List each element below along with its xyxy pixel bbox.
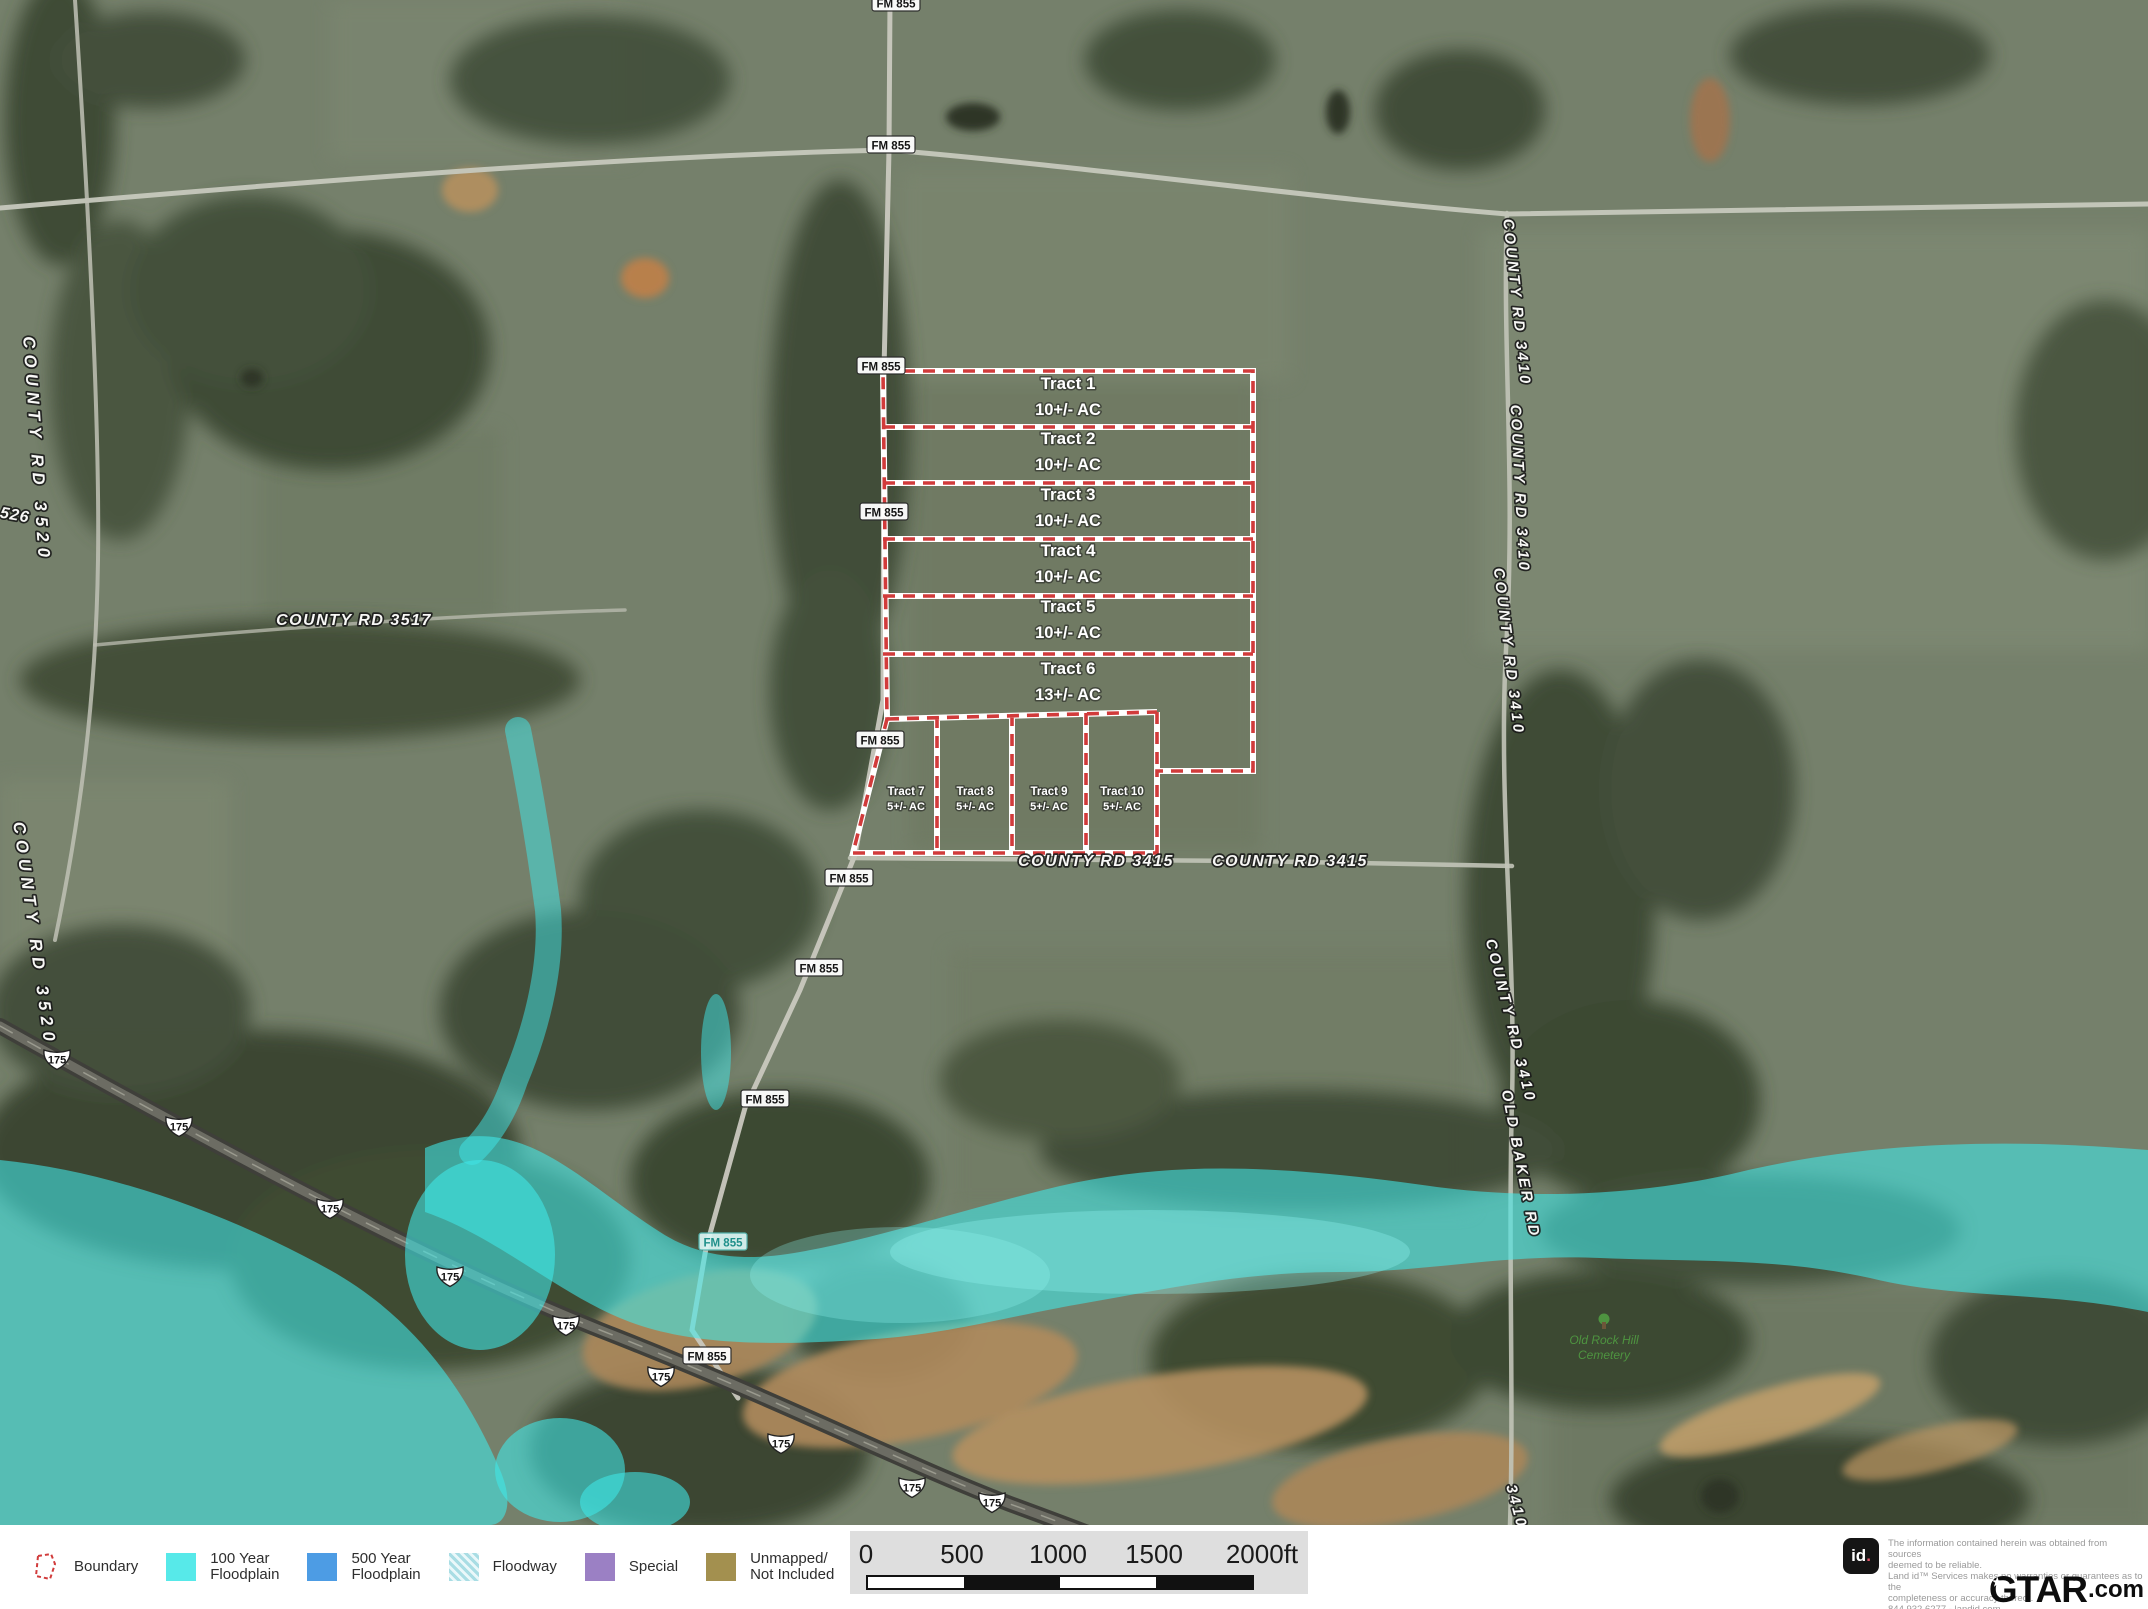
- gtar-suffix: .com: [2088, 1576, 2144, 1604]
- hwy-175-shield-text: 175: [48, 1055, 66, 1067]
- legend-label: Special: [629, 1559, 678, 1575]
- tract-acreage-label: 5+/- AC: [887, 801, 925, 813]
- scale-tick: 2000ft: [1226, 1539, 1298, 1570]
- scale-tick: 1500: [1125, 1539, 1183, 1570]
- tract-acreage-label: 10+/- AC: [1035, 456, 1101, 474]
- legend-label: 100 Year Floodplain: [210, 1551, 279, 1583]
- legend-label: Unmapped/ Not Included: [750, 1551, 834, 1583]
- tract-acreage-label: 10+/- AC: [1035, 401, 1101, 419]
- scale-bar: 0 500 1000 1500 2000ft: [850, 1531, 1308, 1594]
- tract-acreage-label: 5+/- AC: [1103, 801, 1141, 813]
- fm855-badge-text: FM 855: [704, 1238, 744, 1250]
- fm855-badge-text: FM 855: [688, 1352, 728, 1364]
- aerial-map: Old Rock Hill Cemetery COUNTY RD 3517COU…: [0, 0, 2148, 1525]
- hwy-175-shield-text: 175: [903, 1483, 921, 1495]
- legend-label: Floodway: [493, 1559, 557, 1575]
- tract-name-label: Tract 8: [956, 786, 994, 798]
- legend-item-unmapped: Unmapped/ Not Included: [706, 1551, 834, 1583]
- special-swatch: [585, 1553, 615, 1581]
- scale-tick: 0: [859, 1539, 873, 1570]
- legend-item-floodway: Floodway: [449, 1553, 557, 1581]
- fm855-badge: FM 855: [795, 959, 843, 976]
- scale-segment: [868, 1577, 964, 1588]
- legend-item-flood500: 500 Year Floodplain: [307, 1551, 420, 1583]
- fm855-badge: FM 855: [683, 1347, 731, 1364]
- fm855-badge: FM 855: [872, 0, 920, 11]
- tract-acreage-label: 5+/- AC: [1030, 801, 1068, 813]
- gtar-brand: GTAR★: [1989, 1569, 2087, 1609]
- floodway-swatch: [449, 1553, 479, 1581]
- aerial-map-svg: Old Rock Hill Cemetery COUNTY RD 3517COU…: [0, 0, 2148, 1525]
- legend-item-boundary: Boundary: [30, 1553, 138, 1581]
- tract-name-label: Tract 9: [1030, 786, 1067, 798]
- hwy-175-shield-text: 175: [652, 1372, 670, 1384]
- fm855-badge: FM 855: [857, 357, 905, 374]
- tract-acreage-label: 10+/- AC: [1035, 624, 1101, 642]
- star-icon: ★: [1992, 1575, 2003, 1589]
- fm855-badge: FM 855: [741, 1090, 789, 1107]
- cemetery-name-line1: Old Rock Hill: [1569, 1333, 1639, 1347]
- hwy-175-shield-text: 175: [170, 1122, 188, 1134]
- tract-name-label: Tract 3: [1041, 485, 1096, 504]
- tract-acreage-label: 10+/- AC: [1035, 512, 1101, 530]
- fm855-badge-text: FM 855: [872, 141, 912, 153]
- tract-acreage-label: 13+/- AC: [1035, 686, 1101, 704]
- landid-logo: id.: [1843, 1538, 1879, 1574]
- fm855-badge-text: FM 855: [861, 736, 901, 748]
- tract-name-label: Tract 10: [1100, 786, 1143, 798]
- tree-icon-trunk: [1602, 1322, 1606, 1329]
- scale-segment: [1156, 1577, 1252, 1588]
- tract-name-label: Tract 5: [1041, 597, 1096, 616]
- flood100-swatch: [166, 1553, 196, 1581]
- hwy-175-shield-text: 175: [557, 1321, 575, 1333]
- fm855-badge: FM 855: [825, 869, 873, 886]
- fm855-badge-text: FM 855: [862, 362, 902, 374]
- road-label-cr3415: COUNTY RD 3415: [1212, 853, 1368, 870]
- boundary-swatch-icon: [32, 1552, 58, 1582]
- tract-name-label: Tract 4: [1041, 541, 1096, 560]
- disclaimer-line: The information contained herein was obt…: [1888, 1538, 2143, 1560]
- cemetery-name-line2: Cemetery: [1578, 1348, 1631, 1362]
- fm855-badge: FM 855: [699, 1233, 747, 1250]
- tract-name-label: Tract 1: [1041, 374, 1096, 393]
- tract-acreage-label: 5+/- AC: [956, 801, 994, 813]
- road-label-cr3415: COUNTY RD 3415: [1018, 853, 1174, 870]
- fm855-badge-text: FM 855: [877, 0, 917, 11]
- hwy-175-shield-text: 175: [983, 1498, 1001, 1510]
- fm855-badge: FM 855: [860, 503, 908, 520]
- unmapped-swatch: [706, 1553, 736, 1581]
- fm855-badge-text: FM 855: [800, 964, 840, 976]
- legend-label: 500 Year Floodplain: [351, 1551, 420, 1583]
- scale-segment: [964, 1577, 1060, 1588]
- hwy-175-shield-text: 175: [441, 1272, 459, 1284]
- fm855-badge-text: FM 855: [865, 508, 905, 520]
- flood500-swatch: [307, 1553, 337, 1581]
- fm855-badge: FM 855: [856, 731, 904, 748]
- legend-item-flood100: 100 Year Floodplain: [166, 1551, 279, 1583]
- legend-item-special: Special: [585, 1553, 678, 1581]
- hwy-175-shield-text: 175: [321, 1204, 339, 1216]
- scale-segment: [1060, 1577, 1156, 1588]
- tract-acreage-label: 10+/- AC: [1035, 568, 1101, 586]
- fm855-badge-text: FM 855: [746, 1095, 786, 1107]
- fm855-badge-text: FM 855: [830, 874, 870, 886]
- land-listing-map-page: Old Rock Hill Cemetery COUNTY RD 3517COU…: [0, 0, 2148, 1609]
- scale-tick: 500: [940, 1539, 983, 1570]
- legend-label: Boundary: [74, 1559, 138, 1575]
- scale-tick: 1000: [1029, 1539, 1087, 1570]
- legend-items: Boundary100 Year Floodplain500 Year Floo…: [30, 1525, 862, 1609]
- road-label-cr3517: COUNTY RD 3517: [276, 612, 432, 629]
- gtar-watermark: GTAR★.com: [1989, 1569, 2144, 1609]
- scale-bar-segments: [866, 1575, 1254, 1590]
- tract-name-label: Tract 7: [887, 786, 924, 798]
- fm855-badge: FM 855: [867, 136, 915, 153]
- hwy-175-shield-text: 175: [772, 1439, 790, 1451]
- scale-tick-labels: 0 500 1000 1500 2000ft: [850, 1539, 1308, 1565]
- tract-name-label: Tract 6: [1041, 659, 1096, 678]
- boundary-swatch: [30, 1553, 60, 1581]
- tract-name-label: Tract 2: [1041, 429, 1096, 448]
- legend-bar: Boundary100 Year Floodplain500 Year Floo…: [0, 1525, 2148, 1609]
